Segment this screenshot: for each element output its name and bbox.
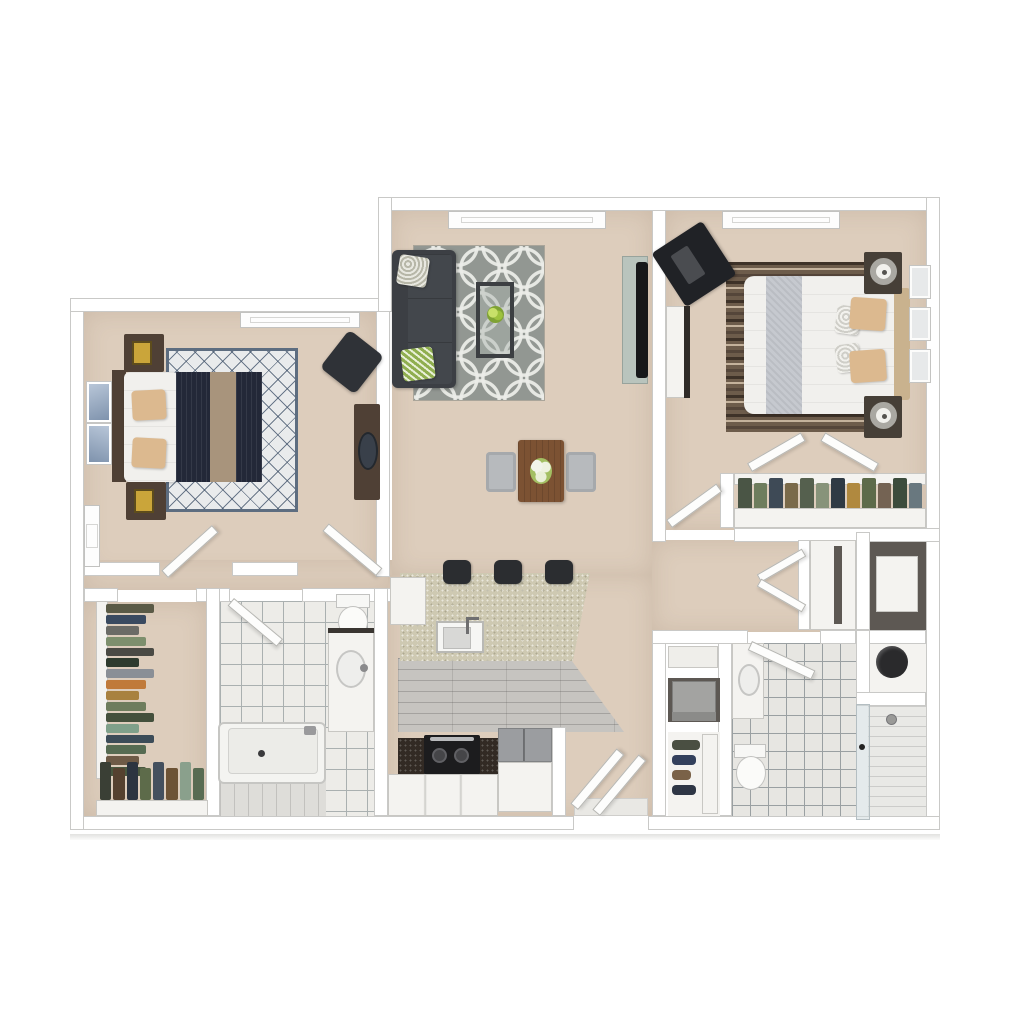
- bed1-lamp-bottom: [134, 489, 154, 513]
- washer-dryer-front: [672, 712, 716, 721]
- kitchen-faucet: [466, 617, 479, 634]
- sofa-pillow-white: [396, 254, 430, 288]
- bathtub-drain: [258, 750, 265, 757]
- bed2-wall-art: [910, 266, 930, 298]
- kitchen-base-cabinets: [388, 774, 498, 816]
- wall-segment: [232, 562, 298, 576]
- clothing-item: [893, 478, 907, 510]
- clothing-item: [847, 483, 861, 510]
- bed2-bookcase-edge: [684, 306, 690, 398]
- range-handle: [430, 737, 474, 741]
- shower-door-handle: [859, 744, 865, 750]
- bedroom-2-closet-clothes: [738, 478, 922, 510]
- linen-closet: [810, 540, 856, 630]
- wall-segment: [374, 588, 388, 816]
- clothing-item: [672, 740, 700, 750]
- clothing-item: [106, 637, 146, 646]
- clothing-item: [106, 626, 139, 635]
- floor-plan-canvas: [0, 0, 1024, 1024]
- bed2-pillow-tan: [849, 297, 887, 331]
- bedroom-2-window: [722, 211, 840, 229]
- clothing-item: [672, 770, 691, 780]
- bar-stool: [443, 560, 471, 584]
- bathtub-faucet: [304, 726, 316, 735]
- bath2-toilet-bowl: [736, 756, 766, 790]
- clothing-item: [140, 768, 151, 800]
- bed1-runner: [210, 372, 236, 482]
- clothing-item: [878, 483, 892, 510]
- bath2-shoe-divider: [702, 734, 718, 814]
- clothing-item: [166, 768, 177, 800]
- bed2-wall-art: [910, 308, 930, 340]
- bedroom-1-window-top: [240, 312, 360, 328]
- clothing-item: [113, 768, 124, 800]
- clothing-item: [769, 478, 783, 510]
- dining-chair: [486, 452, 516, 492]
- cabinet-under-fridge: [498, 762, 552, 812]
- bed2-headboard: [894, 288, 910, 400]
- clothing-item: [106, 669, 154, 678]
- bedroom-2-closet-front: [734, 508, 926, 528]
- burner: [454, 748, 469, 763]
- bed2-lamp-top: [870, 258, 897, 285]
- clothing-item: [831, 478, 845, 510]
- clothing-item: [738, 478, 752, 510]
- refrigerator: [498, 728, 552, 762]
- bed2-lamp-bottom: [870, 402, 897, 429]
- bed1-pillow: [131, 437, 167, 469]
- living-room-window: [448, 211, 606, 229]
- clothing-item: [106, 713, 154, 722]
- bed2-pillow-tan: [849, 349, 887, 383]
- wall-segment: [70, 298, 84, 830]
- bath2-shoe-shelves: [672, 740, 700, 808]
- bed1-console-mirror: [358, 432, 378, 470]
- wall-segment: [84, 588, 118, 602]
- tv-screen: [636, 262, 648, 378]
- bed2-wall-art: [910, 350, 930, 382]
- clothing-item: [106, 604, 154, 613]
- clothing-item: [106, 648, 154, 657]
- wall-segment: [718, 643, 732, 816]
- bed1-wall-art: [87, 382, 111, 422]
- clothing-item: [180, 762, 191, 800]
- bedroom-1-window-left: [84, 505, 100, 567]
- wall-segment: [378, 197, 940, 211]
- wall-segment: [652, 630, 666, 816]
- clothing-item: [106, 658, 139, 667]
- walk-in-clothes-left: [106, 604, 154, 776]
- bath2-sink: [738, 664, 760, 696]
- wall-segment: [720, 473, 734, 528]
- wall-segment: [652, 630, 748, 644]
- wall-segment: [820, 630, 856, 644]
- clothing-item: [862, 478, 876, 510]
- clothing-item: [106, 702, 146, 711]
- wall-segment: [206, 588, 220, 816]
- wall-segment: [378, 197, 392, 312]
- sofa-pillow-green: [400, 346, 436, 382]
- clothing-item: [672, 785, 696, 795]
- kitchen-end-cabinet: [390, 577, 426, 625]
- bath1-faucet: [360, 664, 368, 672]
- plan-shadow: [70, 834, 940, 840]
- bed1-lamp-top: [132, 341, 152, 365]
- shower-room-floor: [868, 706, 926, 816]
- clothing-item: [106, 745, 146, 754]
- clothing-item: [800, 478, 814, 510]
- breakfast-bar-counter: [400, 573, 590, 661]
- clothing-item: [785, 483, 799, 510]
- clothing-item: [193, 768, 204, 800]
- clothing-item: [127, 762, 138, 800]
- walk-in-clothes-bottom: [100, 762, 204, 800]
- wall-segment: [552, 727, 566, 816]
- wall-segment: [70, 816, 574, 830]
- bed1-pillow: [131, 389, 167, 421]
- burner: [432, 748, 447, 763]
- walk-in-bottom-shelf: [96, 800, 208, 816]
- bath2-niche-shelf: [668, 646, 718, 668]
- bed2-runner: [766, 276, 802, 414]
- bed1-wall-art: [87, 424, 111, 464]
- counter-right-of-stove: [480, 738, 498, 774]
- wall-segment: [648, 816, 940, 830]
- clothing-item: [672, 755, 696, 765]
- clothing-item: [106, 735, 154, 744]
- clothing-item: [909, 483, 923, 510]
- shower-head: [886, 714, 897, 725]
- clothing-item: [106, 691, 139, 700]
- linen-closet-interior: [834, 546, 842, 624]
- bath1-vanity-edge: [328, 628, 374, 633]
- dining-centerpiece: [530, 458, 552, 484]
- bar-stool: [494, 560, 522, 584]
- clothing-item: [153, 762, 164, 800]
- clothing-item: [106, 724, 139, 733]
- dining-chair: [566, 452, 596, 492]
- water-heater: [876, 646, 908, 678]
- wall-segment: [856, 532, 870, 630]
- clothing-item: [754, 483, 768, 510]
- clothing-item: [106, 615, 146, 624]
- laundry-unit: [876, 556, 918, 612]
- clothing-item: [816, 483, 830, 510]
- counter-left-of-stove: [398, 738, 424, 774]
- coffee-table-plant: [487, 306, 504, 323]
- clothing-item: [106, 680, 146, 689]
- shower-glass-door: [856, 704, 870, 820]
- wall-segment: [70, 298, 392, 312]
- bar-stool: [545, 560, 573, 584]
- clothing-item: [100, 762, 111, 800]
